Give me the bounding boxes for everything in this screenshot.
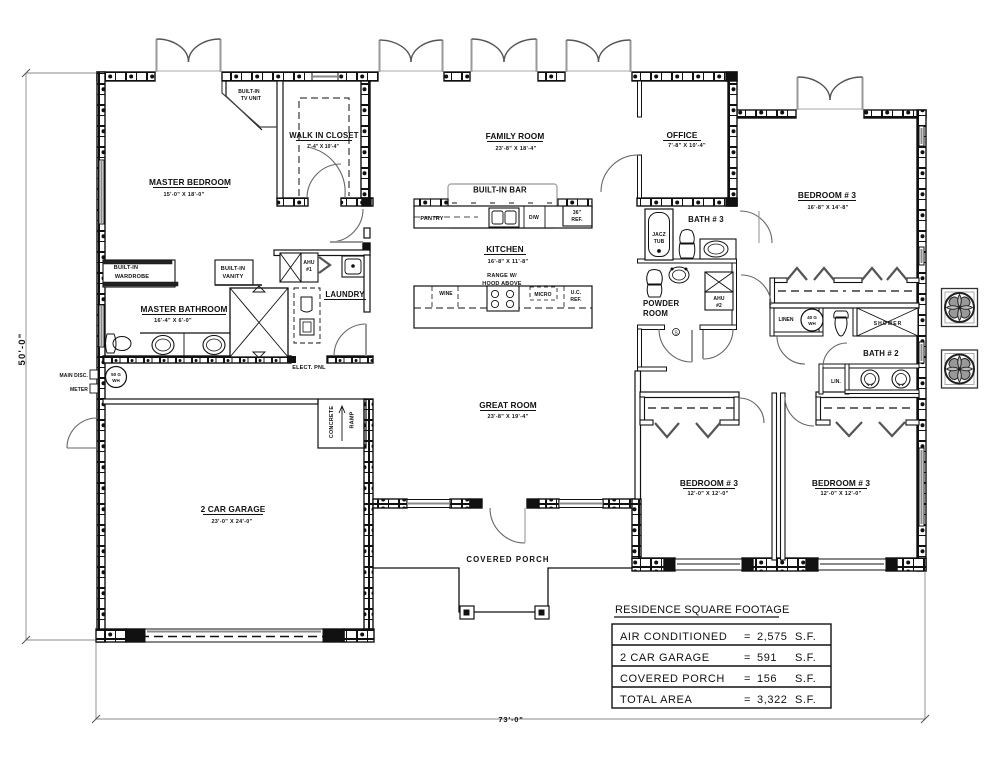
svg-text:AIR CONDITIONED: AIR CONDITIONED (620, 631, 727, 643)
svg-text:LIN.: LIN. (831, 379, 841, 385)
svg-text:S.F.: S.F. (795, 694, 816, 706)
svg-text:TV UNIT: TV UNIT (241, 96, 261, 102)
svg-text:BUILT-IN: BUILT-IN (238, 89, 260, 95)
svg-text:RANGE W/: RANGE W/ (487, 273, 517, 279)
svg-text:OFFICE: OFFICE (666, 130, 697, 140)
svg-text:=: = (744, 673, 751, 685)
svg-text:FAMILY ROOM: FAMILY ROOM (486, 131, 545, 141)
svg-text:ROOM: ROOM (643, 309, 668, 318)
svg-text:METER: METER (70, 387, 88, 393)
svg-text:BATH # 2: BATH # 2 (863, 349, 899, 358)
svg-text:#2: #2 (716, 303, 722, 309)
svg-text:TUB: TUB (654, 239, 665, 245)
svg-text:=: = (744, 652, 751, 664)
svg-text:VANITY: VANITY (223, 274, 244, 280)
svg-text:RAMP: RAMP (350, 411, 356, 428)
svg-text:S.F.: S.F. (795, 673, 816, 685)
svg-text:COVERED PORCH: COVERED PORCH (620, 673, 725, 685)
svg-text:16'-8" X 14'-8": 16'-8" X 14'-8" (807, 205, 848, 211)
svg-text:36": 36" (573, 210, 582, 216)
svg-text:BEDROOM # 3: BEDROOM # 3 (798, 190, 857, 200)
svg-text:2 CAR GARAGE: 2 CAR GARAGE (620, 652, 710, 664)
svg-text:CONCRETE: CONCRETE (329, 406, 335, 439)
svg-text:S.F.: S.F. (795, 631, 816, 643)
svg-text:U.C.: U.C. (571, 290, 582, 296)
svg-text:40 G: 40 G (807, 315, 817, 320)
svg-text:WALK IN CLOSET: WALK IN CLOSET (289, 131, 359, 140)
svg-text:156: 156 (757, 673, 777, 685)
svg-text:MASTER BATHROOM: MASTER BATHROOM (140, 304, 227, 314)
svg-text:AHU: AHU (303, 260, 314, 266)
svg-text:HOOD ABOVE: HOOD ABOVE (482, 281, 522, 287)
svg-text:REF.: REF. (571, 217, 583, 223)
svg-text:LAUNDRY: LAUNDRY (325, 290, 365, 299)
svg-text:SHOWER: SHOWER (874, 321, 903, 327)
svg-text:BUILT-IN BAR: BUILT-IN BAR (473, 186, 527, 195)
svg-text:JACZ: JACZ (652, 232, 665, 238)
svg-text:73'-0": 73'-0" (498, 715, 523, 724)
svg-text:16'-4" X 6'-0": 16'-4" X 6'-0" (154, 318, 192, 324)
svg-text:COVERED PORCH: COVERED PORCH (466, 555, 549, 564)
svg-text:WARDROBE: WARDROBE (115, 274, 149, 280)
svg-text:=: = (744, 631, 751, 643)
svg-text:15'-0" X 18'-0": 15'-0" X 18'-0" (163, 192, 204, 198)
svg-text:BEDROOM # 3: BEDROOM # 3 (812, 478, 871, 488)
svg-text:BEDROOM # 3: BEDROOM # 3 (680, 478, 739, 488)
svg-text:BATH # 3: BATH # 3 (688, 215, 724, 224)
svg-text:S.F.: S.F. (795, 652, 816, 664)
svg-text:MAIN DISC.: MAIN DISC. (60, 373, 89, 379)
svg-text:BUILT-IN: BUILT-IN (221, 266, 245, 272)
svg-text:MASTER BEDROOM: MASTER BEDROOM (149, 177, 231, 187)
svg-text:7'-4" X 10'-4": 7'-4" X 10'-4" (307, 144, 339, 150)
svg-text:16'-8" X 11'-8": 16'-8" X 11'-8" (488, 259, 529, 265)
svg-text:REF.: REF. (570, 297, 582, 303)
svg-text:23'-8" X 18'-4": 23'-8" X 18'-4" (495, 146, 536, 152)
svg-text:12'-0" X 12'-0": 12'-0" X 12'-0" (687, 491, 728, 497)
svg-text:TOTAL AREA: TOTAL AREA (620, 694, 692, 706)
svg-text:KITCHEN: KITCHEN (486, 244, 524, 254)
svg-text:LINEN: LINEN (779, 317, 794, 323)
svg-text:23'-0" X 24'-0": 23'-0" X 24'-0" (211, 519, 252, 525)
svg-text:7'-8" X 10'-4": 7'-8" X 10'-4" (668, 143, 706, 149)
svg-text:WINE: WINE (439, 291, 453, 297)
svg-text:MICRO: MICRO (534, 292, 551, 298)
svg-text:GREAT ROOM: GREAT ROOM (479, 400, 537, 410)
svg-text:RESIDENCE SQUARE FOOTAGE: RESIDENCE SQUARE FOOTAGE (615, 604, 790, 616)
svg-text:#1: #1 (306, 267, 312, 273)
svg-text:3,322: 3,322 (757, 694, 788, 706)
svg-text:50'-0": 50'-0" (17, 333, 28, 366)
svg-text:=: = (744, 694, 751, 706)
svg-text:BUILT-IN: BUILT-IN (114, 265, 138, 271)
svg-text:ELECT. PNL: ELECT. PNL (292, 365, 326, 371)
svg-text:2 CAR GARAGE: 2 CAR GARAGE (201, 504, 266, 514)
svg-text:D/W: D/W (529, 215, 539, 221)
svg-text:591: 591 (757, 652, 777, 664)
svg-text:50 G: 50 G (111, 372, 121, 377)
svg-text:23'-8" X 19'-4": 23'-8" X 19'-4" (487, 414, 528, 420)
svg-text:12'-0" X 12'-0": 12'-0" X 12'-0" (820, 491, 861, 497)
svg-text:WH: WH (808, 321, 816, 326)
svg-text:POWDER: POWDER (643, 299, 679, 308)
svg-text:WH: WH (112, 378, 120, 383)
svg-text:AHU: AHU (713, 296, 724, 302)
svg-text:2,575: 2,575 (757, 631, 788, 643)
svg-text:PANTRY: PANTRY (420, 216, 443, 222)
